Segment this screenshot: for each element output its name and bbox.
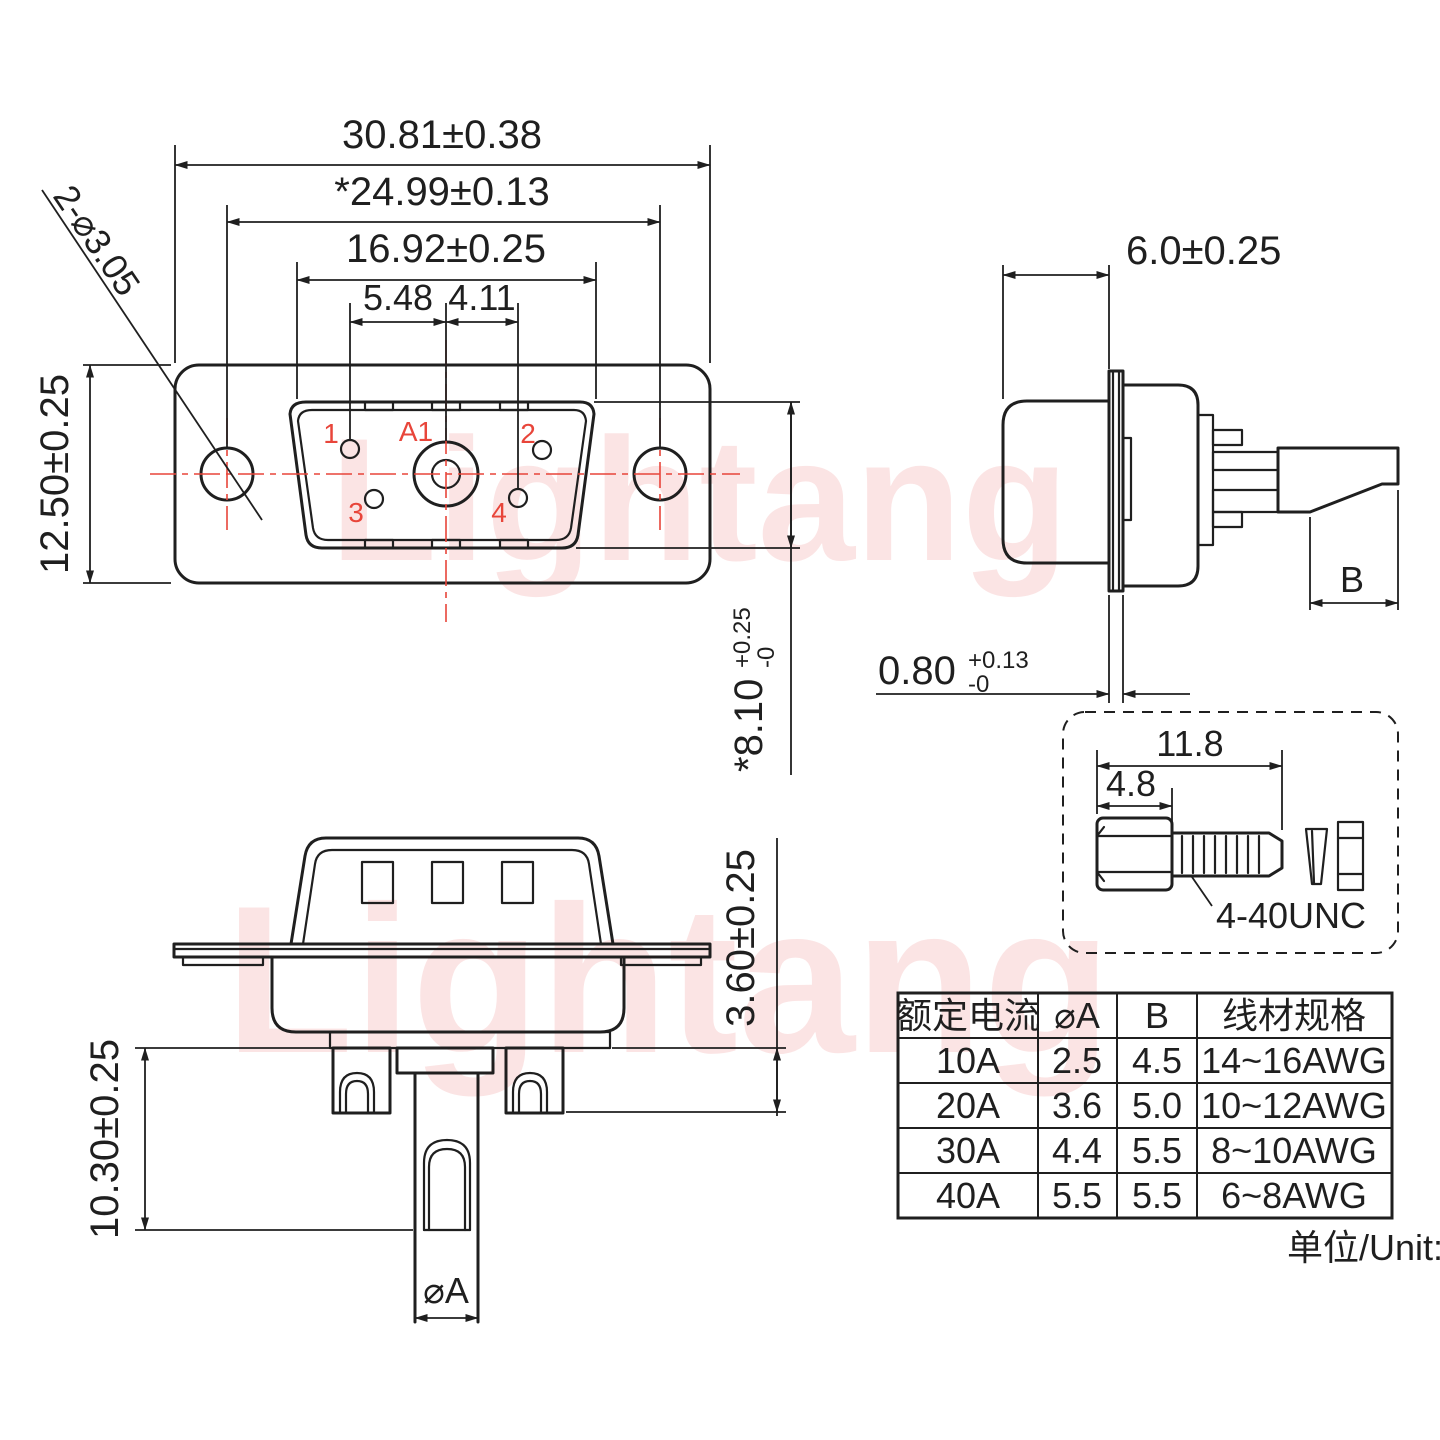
svg-text:+0.13: +0.13 [968,647,1029,674]
svg-text:5.0: 5.0 [1132,1085,1182,1126]
hex-nut [1338,822,1363,890]
thread-leader-line [1192,877,1212,906]
svg-text:5.5: 5.5 [1052,1175,1102,1216]
table-header-row: 额定电流 ⌀A B 线材规格 [896,995,1366,1036]
svg-text:6~8AWG: 6~8AWG [1221,1175,1367,1216]
terminals [1213,430,1278,527]
table-row: 30A 4.4 5.5 8~10AWG [936,1130,1377,1171]
dim-flange-height: 12.50±0.25 [33,374,77,574]
dim-pin-diameter: ⌀A [423,1270,469,1311]
svg-text:-0: -0 [968,671,989,698]
dim-insulator-height: 3.60±0.25 [719,849,763,1027]
svg-text:-0: -0 [753,647,780,668]
svg-text:20A: 20A [936,1085,1000,1126]
pin-4-label: 4 [491,497,507,528]
wire-outline [1278,448,1398,512]
dim-total-width: 30.81±0.38 [342,113,542,157]
svg-text:10A: 10A [936,1040,1000,1081]
table-row: 40A 5.5 5.5 6~8AWG [936,1175,1367,1216]
dim-pin-right: 4.11 [448,277,515,318]
dim-total-length: 11.8 [1156,723,1223,764]
svg-text:40A: 40A [936,1175,1000,1216]
dim-flange-thickness: 0.80 +0.13 -0 [878,647,1029,698]
connector-drawing: Lightang Lightang [0,0,1440,1440]
svg-text:2.5: 2.5 [1052,1040,1102,1081]
svg-text:+0.25: +0.25 [729,607,756,668]
pin-1-label: 1 [323,418,339,449]
unit-note: 单位/Unit:mm [1287,1227,1440,1268]
svg-text:5.5: 5.5 [1132,1175,1182,1216]
col-header-b: B [1145,995,1169,1036]
col-header-wire-gauge: 线材规格 [1222,995,1366,1036]
dim-body-depth: 6.0±0.25 [1126,229,1281,273]
svg-text:4.5: 4.5 [1132,1040,1182,1081]
body-side-outline [1123,385,1198,586]
dim-shell-height: *8.10 +0.25 -0 [727,607,780,772]
pin-3-label: 3 [348,497,364,528]
col-header-rated-current: 额定电流 [896,995,1040,1036]
svg-text:4.4: 4.4 [1052,1130,1102,1171]
flange-plate-side [1109,371,1123,591]
col-header-dia-a: ⌀A [1054,995,1100,1036]
dim-shell-width: 16.92±0.25 [346,227,546,271]
dim-pin-length: 10.30±0.25 [83,1039,127,1239]
svg-text:*8.10: *8.10 [727,679,771,772]
screw-detail: 11.8 4.8 4-40UNC [1063,712,1398,953]
spec-table: 额定电流 ⌀A B 线材规格 10A 2.5 4.5 14~16AWG 20A … [896,993,1440,1268]
pin-2-label: 2 [520,418,536,449]
watermark-text: Lightang [330,403,1069,598]
dim-head-length: 4.8 [1106,763,1156,804]
svg-text:10~12AWG: 10~12AWG [1201,1085,1387,1126]
taper-pin [1306,829,1327,884]
dim-pin-left: 5.48 [363,277,433,318]
thread-hatching [1182,836,1259,873]
svg-text:14~16AWG: 14~16AWG [1201,1040,1387,1081]
svg-text:5.5: 5.5 [1132,1130,1182,1171]
dim-wire-strip: B [1340,559,1364,600]
svg-text:30A: 30A [936,1130,1000,1171]
dim-mount-spacing: *24.99±0.13 [334,170,549,214]
drawing-canvas: Lightang Lightang [0,0,1440,1440]
svg-text:8~10AWG: 8~10AWG [1211,1130,1377,1171]
pin-a1-label: A1 [399,416,433,447]
terminal-block [1198,415,1213,545]
dim-mount-holes: 2-⌀3.05 [45,178,148,304]
svg-text:0.80: 0.80 [878,649,956,693]
thread-spec-label: 4-40UNC [1216,895,1366,936]
svg-text:3.6: 3.6 [1052,1085,1102,1126]
